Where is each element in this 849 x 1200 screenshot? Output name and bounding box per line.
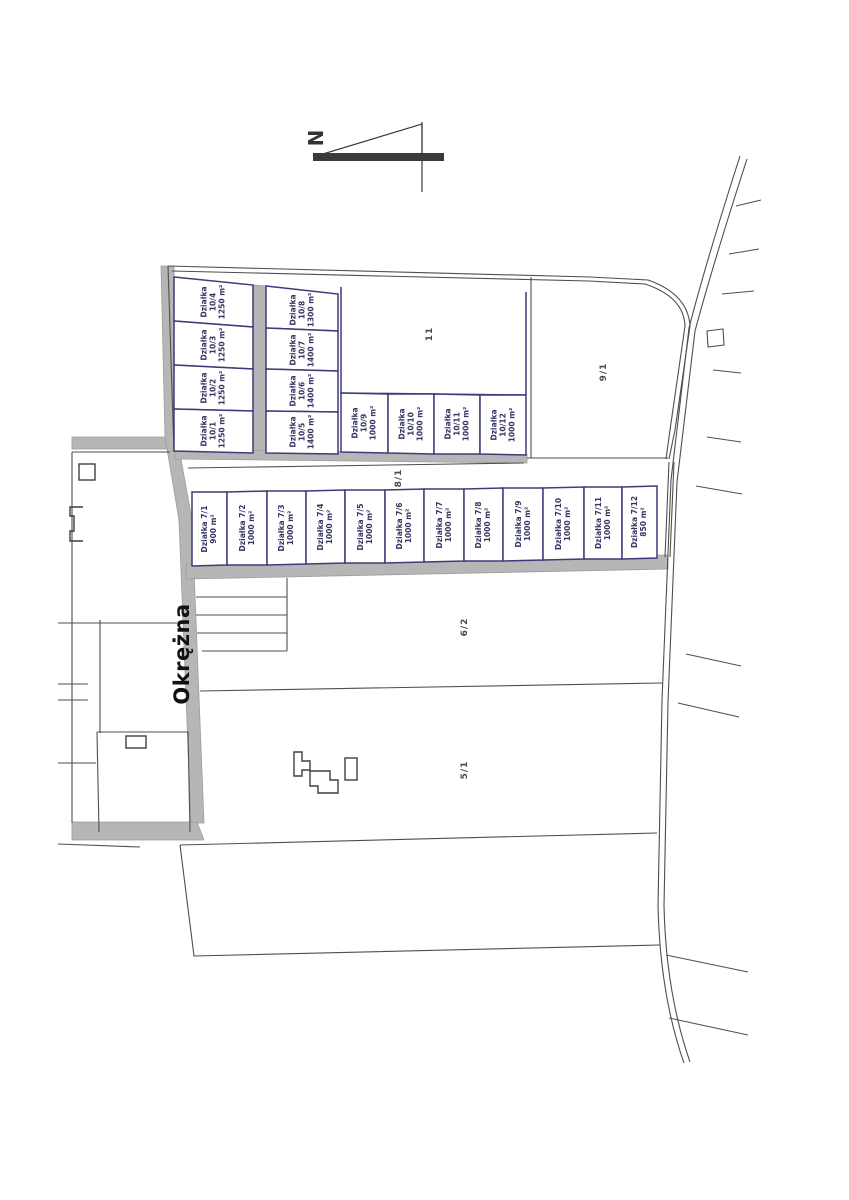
boundary-5-1-south [180,833,657,845]
boundary-6-2-5-1 [200,683,662,691]
plot-7-12 [622,486,657,559]
plot-7-11 [584,487,622,559]
plot-10-2 [174,365,253,411]
east-corridor-line-2 [670,462,674,557]
north-arrow-triangle [313,124,422,157]
building-outline [79,464,95,480]
parcel-8-1-north-edge [188,463,524,468]
plot-7-3 [267,491,306,565]
plot-7-8 [464,488,503,561]
plan-linework [0,0,849,1200]
plot-10-1 [174,409,253,453]
plot-7-10 [543,487,584,560]
plot-10-6 [266,369,338,412]
plot-10-11 [434,394,480,454]
building-outline [310,771,338,793]
east-parcel-tick [736,200,761,206]
east-parcel-tick [686,654,741,666]
east-parcel-tick [729,249,759,254]
west-area-line [58,844,140,847]
bottom-parcel-outline [180,845,660,956]
plot-7-9 [503,488,543,561]
road-between-10-columns [253,285,266,453]
site-plan: N Okrężna 11 9/1 8/1 6/2 5/1 Działka 10/… [0,0,849,1200]
plot-7-7 [424,489,464,562]
east-parcel-tick [678,703,739,717]
east-parcel-tick [722,291,754,294]
east-parcel-tick [666,955,748,972]
plot-10-9 [341,393,388,453]
plot-outlines [174,277,657,566]
plot-7-5 [345,490,385,563]
east-parcel-tick [696,486,742,494]
road-top-arm [72,437,171,449]
diagonal-road-west [658,156,740,1063]
building-outline [294,752,310,776]
plot-10-5 [266,411,338,454]
east-parcel-tick [713,370,741,373]
plot-10-12 [480,395,526,455]
plot-7-2 [227,491,267,565]
plot-7-1 [192,492,227,566]
plot-7-4 [306,490,345,564]
east-road-bump [707,329,724,347]
road-bottom-turn [72,822,204,840]
plot-11 [341,287,526,395]
plot-10-4 [174,277,253,327]
plot-10-7 [266,328,338,371]
plot-10-10 [388,394,434,454]
building-outline [126,736,146,748]
east-parcel-tick [707,437,741,442]
north-arrow-bar [313,153,444,161]
plot-10-8 [266,286,338,331]
plot-7-6 [385,489,424,563]
diagonal-road-east [664,159,747,1062]
building-outline [345,758,357,780]
north-arrow [313,122,444,192]
plot-10-3 [174,321,253,369]
